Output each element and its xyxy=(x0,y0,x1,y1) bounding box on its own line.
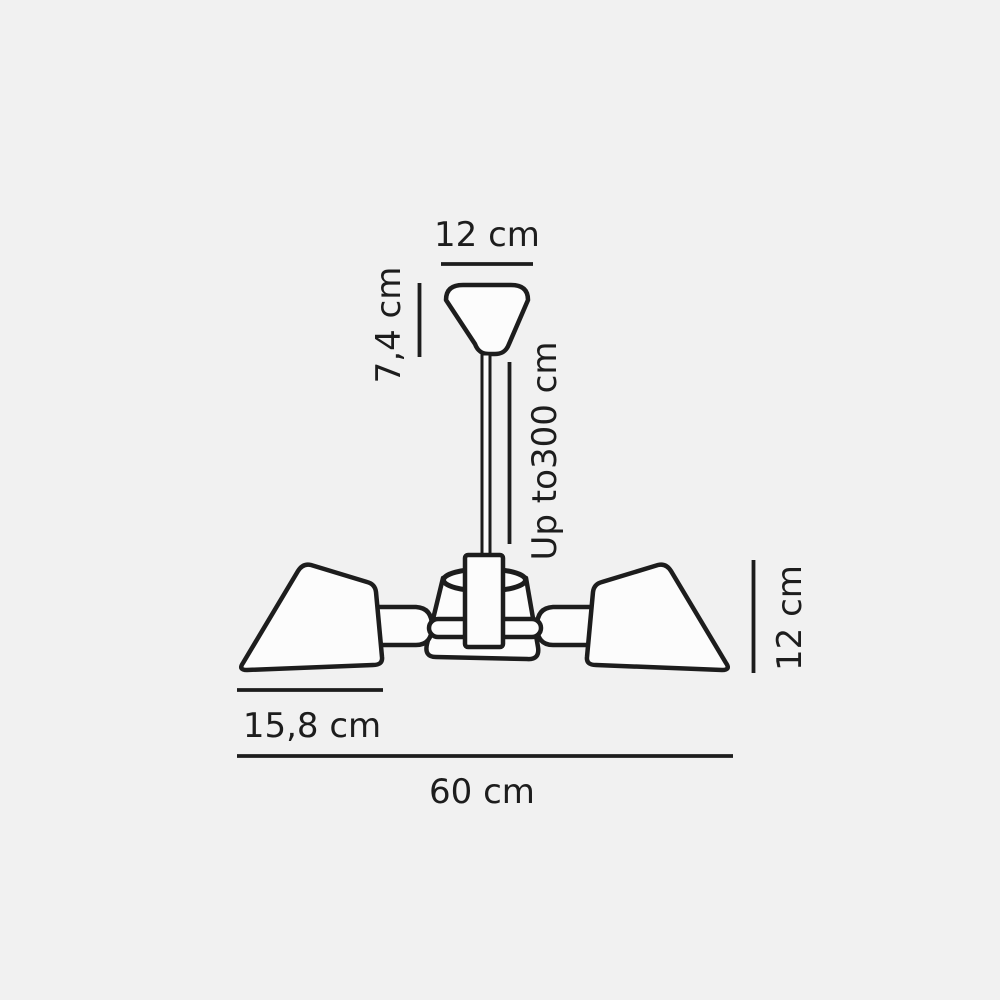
shade-width-label: 15,8 cm xyxy=(243,706,381,746)
diagram-canvas: 12 cm 7,4 cm Up to300 cm 12 cm 15,8 cm 6… xyxy=(0,0,1000,1000)
right-shade xyxy=(587,565,728,670)
canopy-width-label: 12 cm xyxy=(434,215,540,255)
suspension-rod xyxy=(482,354,490,557)
lamp-dimension-diagram: 12 cm 7,4 cm Up to300 cm 12 cm 15,8 cm 6… xyxy=(0,0,1000,1000)
suspension-length-label: Up to300 cm xyxy=(525,342,565,561)
canopy-shape xyxy=(446,285,528,354)
canopy-height-label: 7,4 cm xyxy=(369,267,409,384)
rod-socket xyxy=(465,555,503,647)
shade-height-label: 12 cm xyxy=(770,565,810,671)
left-shade xyxy=(241,565,382,670)
fixture-width-label: 60 cm xyxy=(429,772,535,812)
